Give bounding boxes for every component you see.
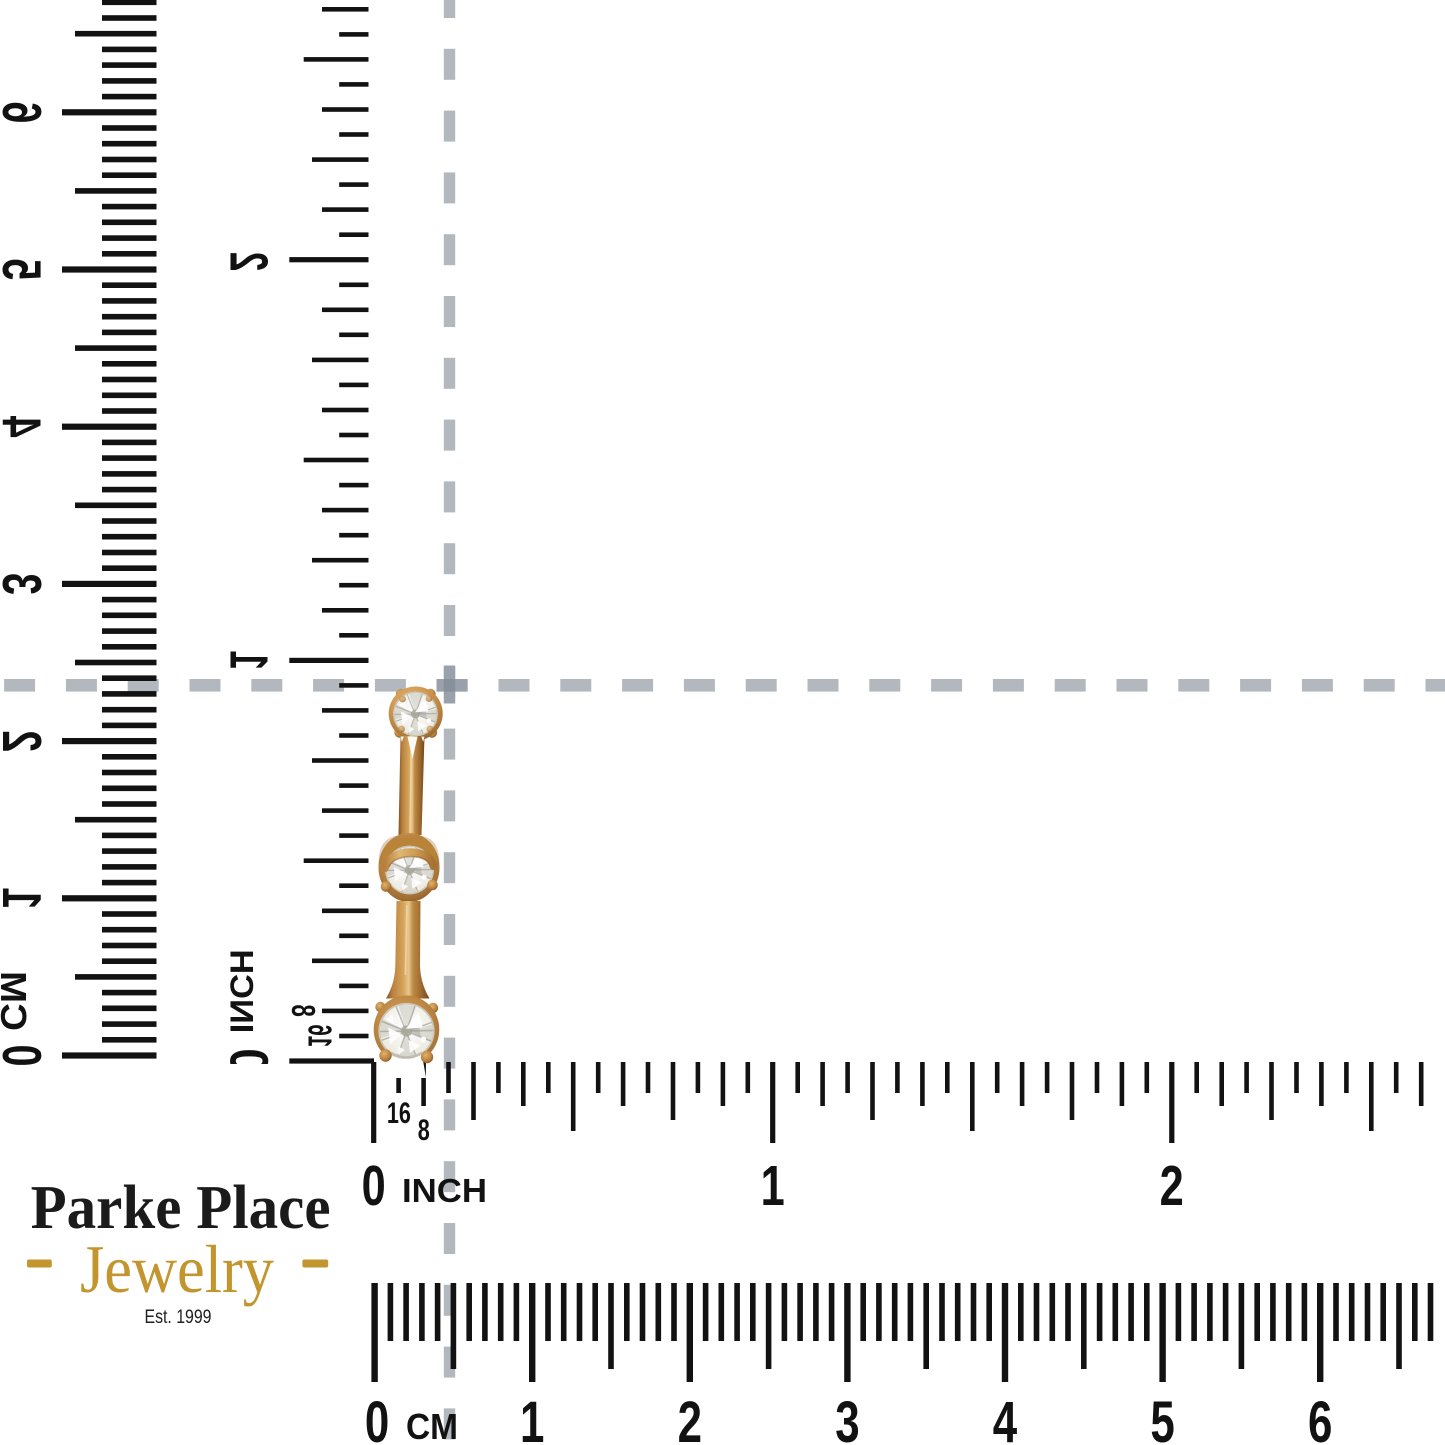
- svg-text:4: 4: [0, 415, 51, 437]
- svg-text:1: 1: [219, 651, 279, 671]
- svg-text:8: 8: [285, 1004, 322, 1016]
- svg-text:16: 16: [387, 1095, 411, 1129]
- svg-text:INCH: INCH: [402, 1173, 487, 1210]
- svg-text:0: 0: [365, 1389, 389, 1445]
- svg-text:2: 2: [1160, 1153, 1184, 1217]
- svg-text:1: 1: [520, 1389, 544, 1445]
- svg-text:3: 3: [835, 1389, 859, 1445]
- svg-text:4: 4: [993, 1389, 1018, 1445]
- svg-text:1: 1: [761, 1153, 785, 1217]
- svg-text:5: 5: [1150, 1389, 1174, 1445]
- svg-text:2: 2: [678, 1389, 702, 1445]
- svg-text:Jewelry: Jewelry: [80, 1231, 274, 1307]
- svg-text:1: 1: [0, 887, 51, 909]
- svg-text:3: 3: [0, 573, 51, 595]
- svg-text:CM: CM: [0, 971, 34, 1031]
- svg-text:Est. 1999: Est. 1999: [145, 1306, 212, 1328]
- svg-text:2: 2: [0, 730, 51, 752]
- svg-text:6: 6: [1308, 1389, 1332, 1445]
- svg-text:2: 2: [219, 252, 279, 272]
- svg-text:0: 0: [362, 1153, 386, 1217]
- svg-text:CM: CM: [406, 1406, 458, 1445]
- svg-text:8: 8: [418, 1112, 430, 1146]
- svg-text:16: 16: [301, 1024, 338, 1047]
- svg-text:5: 5: [0, 258, 51, 280]
- svg-text:INCH: INCH: [223, 949, 259, 1033]
- svg-text:0: 0: [0, 1044, 51, 1066]
- svg-text:6: 6: [0, 101, 51, 123]
